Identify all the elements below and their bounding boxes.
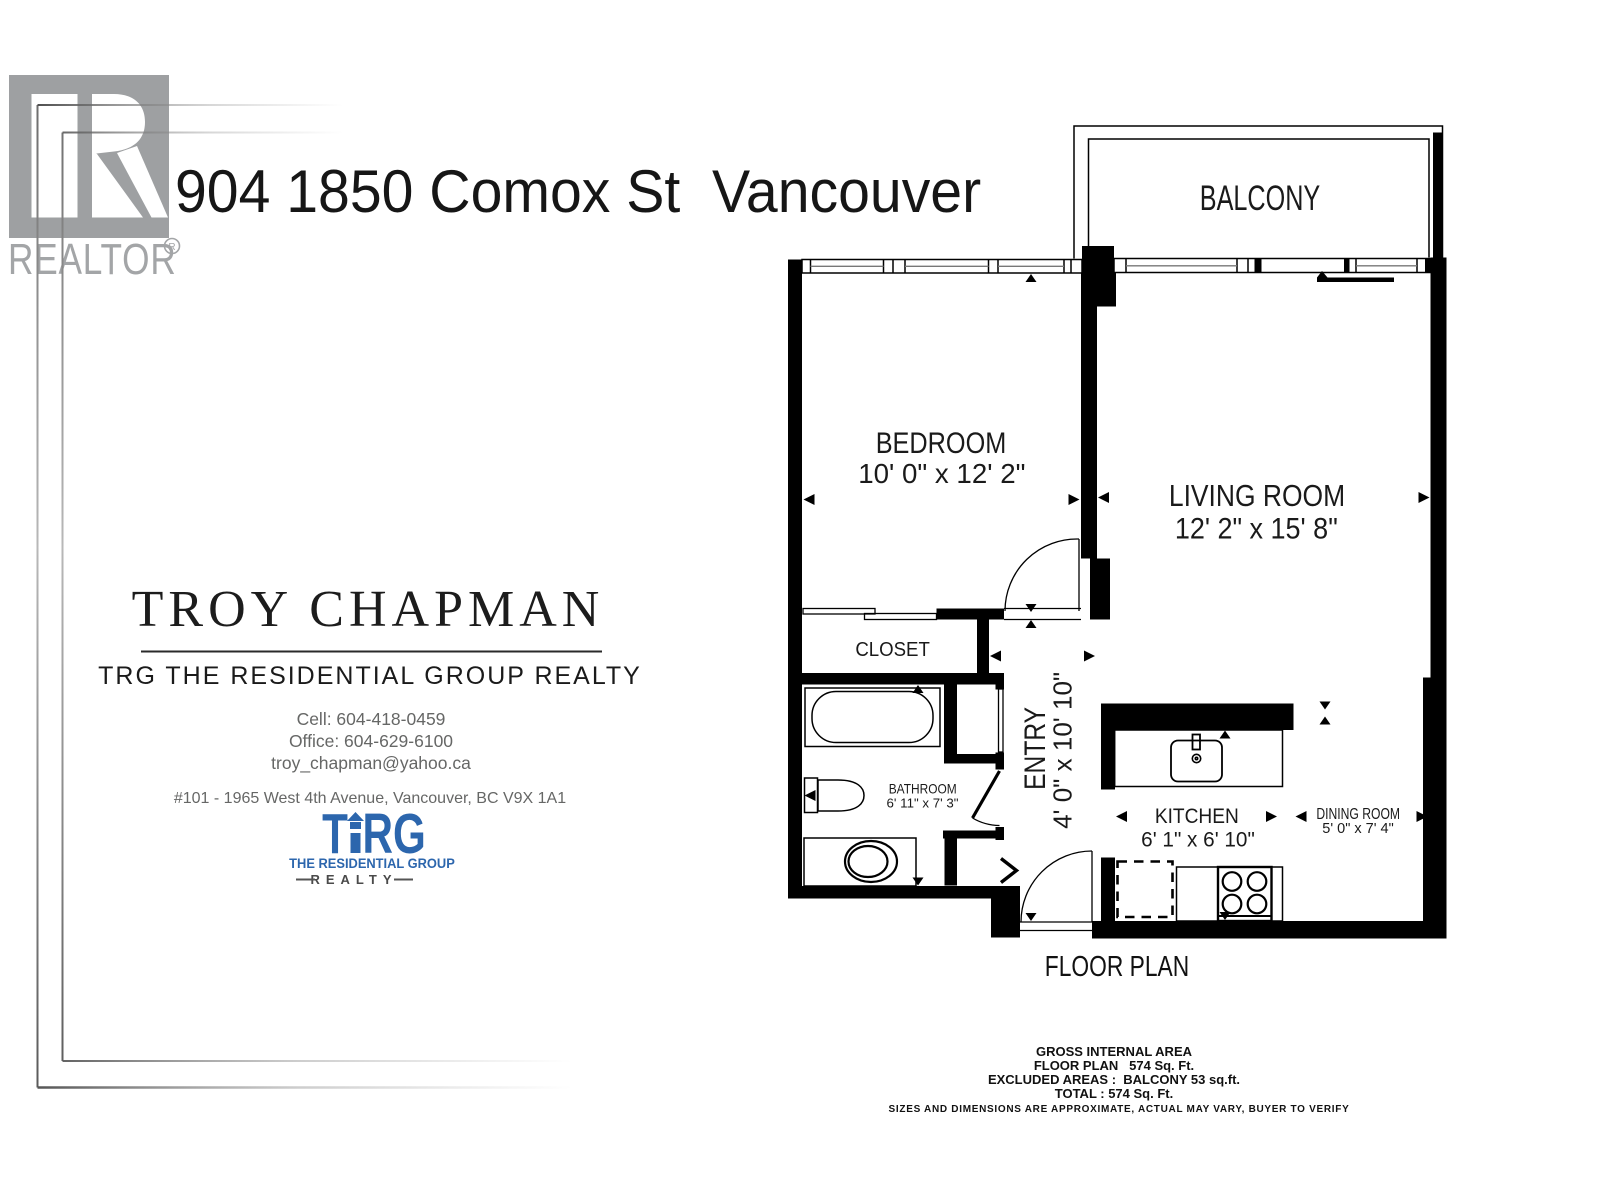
svg-text:REALTOR: REALTOR [8,235,177,284]
svg-text:Cell: 604-418-0459: Cell: 604-418-0459 [297,709,446,729]
svg-text:4' 0" x 10' 10": 4' 0" x 10' 10" [1050,672,1078,829]
svg-text:BATHROOM: BATHROOM [889,782,957,797]
svg-text:DINING ROOM: DINING ROOM [1316,805,1400,823]
svg-text:TROY CHAPMAN: TROY CHAPMAN [132,581,605,638]
svg-text:ENTRY: ENTRY [1018,707,1052,790]
svg-text:TRG THE RESIDENTIAL GROUP REAL: TRG THE RESIDENTIAL GROUP REALTY [98,662,642,690]
svg-text:LIVING ROOM: LIVING ROOM [1169,479,1345,513]
svg-text:BEDROOM: BEDROOM [876,426,1007,459]
svg-text:R: R [168,242,175,253]
svg-text:TOTAL : 574 Sq. Ft.: TOTAL : 574 Sq. Ft. [1055,1086,1173,1101]
svg-text:REALTY: REALTY [310,872,397,887]
svg-text:12' 2" x 15' 8": 12' 2" x 15' 8" [1175,512,1338,546]
svg-text:FLOOR PLAN: FLOOR PLAN [1045,952,1189,983]
svg-text:FLOOR PLAN 574 Sq. Ft.: FLOOR PLAN 574 Sq. Ft. [1034,1058,1194,1073]
svg-text:10' 0" x 12' 2": 10' 0" x 12' 2" [858,458,1025,489]
svg-text:THE RESIDENTIAL GROUP: THE RESIDENTIAL GROUP [289,856,455,872]
svg-text:GROSS INTERNAL AREA: GROSS INTERNAL AREA [1036,1044,1193,1059]
svg-text:SIZES AND DIMENSIONS ARE APPRO: SIZES AND DIMENSIONS ARE APPROXIMATE, AC… [889,1104,1350,1115]
svg-text:Office: 604-629-6100: Office: 604-629-6100 [289,731,453,751]
svg-text:CLOSET: CLOSET [855,638,930,661]
svg-text:6' 11" x 7' 3": 6' 11" x 7' 3" [887,796,959,811]
svg-text:EXCLUDED AREAS : BALCONY 53 s: EXCLUDED AREAS : BALCONY 53 sq.ft. [988,1072,1240,1087]
svg-text:5' 0" x 7' 4": 5' 0" x 7' 4" [1322,821,1393,837]
svg-text:troy_chapman@yahoo.ca: troy_chapman@yahoo.ca [271,753,471,774]
svg-text:904 1850 Comox St Vancouver: 904 1850 Comox St Vancouver [175,159,981,226]
svg-text:KITCHEN: KITCHEN [1155,805,1239,828]
svg-text:BALCONY: BALCONY [1200,178,1320,218]
svg-text:6' 1" x 6' 10": 6' 1" x 6' 10" [1141,828,1255,851]
